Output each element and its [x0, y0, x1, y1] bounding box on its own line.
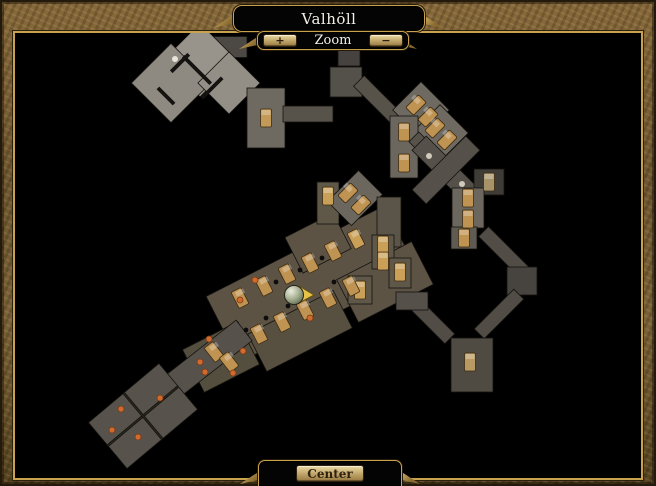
zoom-in-button[interactable]: + — [263, 34, 297, 47]
title-plaque[interactable]: Valhöll — [233, 5, 425, 32]
zoom-out-button[interactable]: − — [369, 34, 403, 47]
zoom-controls: + Zoom − — [257, 31, 409, 50]
center-plaque: Center — [258, 460, 402, 486]
map-svg — [15, 33, 641, 478]
map-viewport[interactable] — [13, 31, 643, 480]
dungeon-floorplan — [88, 33, 537, 469]
zoom-label: Zoom — [314, 33, 351, 48]
gold-filigree-icon — [213, 12, 235, 28]
center-button[interactable]: Center — [296, 465, 364, 482]
map-title: Valhöll — [302, 10, 357, 28]
map-window: Valhöll + Zoom − Center — [0, 0, 656, 486]
